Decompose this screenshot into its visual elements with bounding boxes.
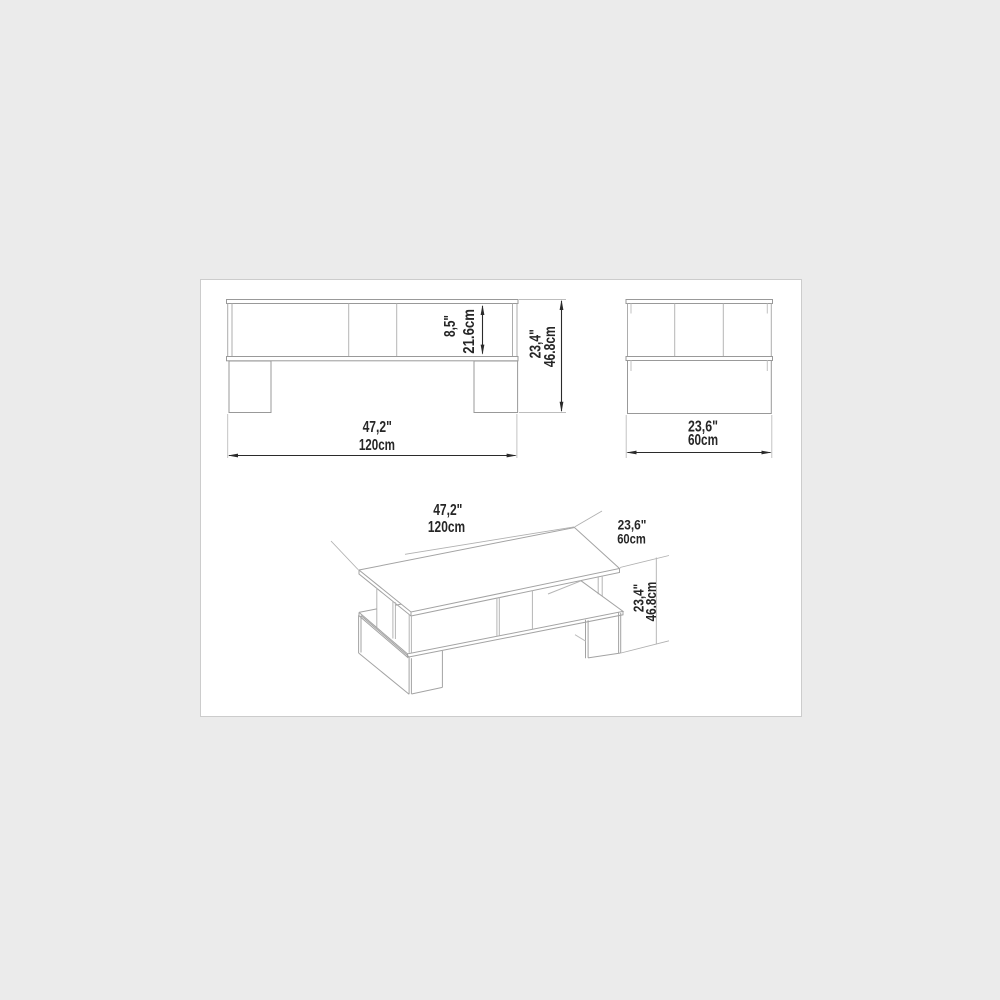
svg-text:8,5": 8,5" bbox=[442, 315, 459, 337]
svg-text:47,2": 47,2" bbox=[433, 500, 462, 518]
svg-text:60cm: 60cm bbox=[688, 432, 718, 449]
svg-text:120cm: 120cm bbox=[428, 517, 465, 535]
svg-text:60cm: 60cm bbox=[617, 531, 646, 546]
svg-text:47,2": 47,2" bbox=[363, 417, 392, 435]
svg-text:21.6cm: 21.6cm bbox=[461, 309, 478, 354]
svg-text:120cm: 120cm bbox=[359, 436, 395, 453]
svg-text:23,6": 23,6" bbox=[618, 517, 647, 533]
svg-text:46.8cm: 46.8cm bbox=[541, 326, 559, 367]
svg-text:46.8cm: 46.8cm bbox=[643, 582, 660, 622]
